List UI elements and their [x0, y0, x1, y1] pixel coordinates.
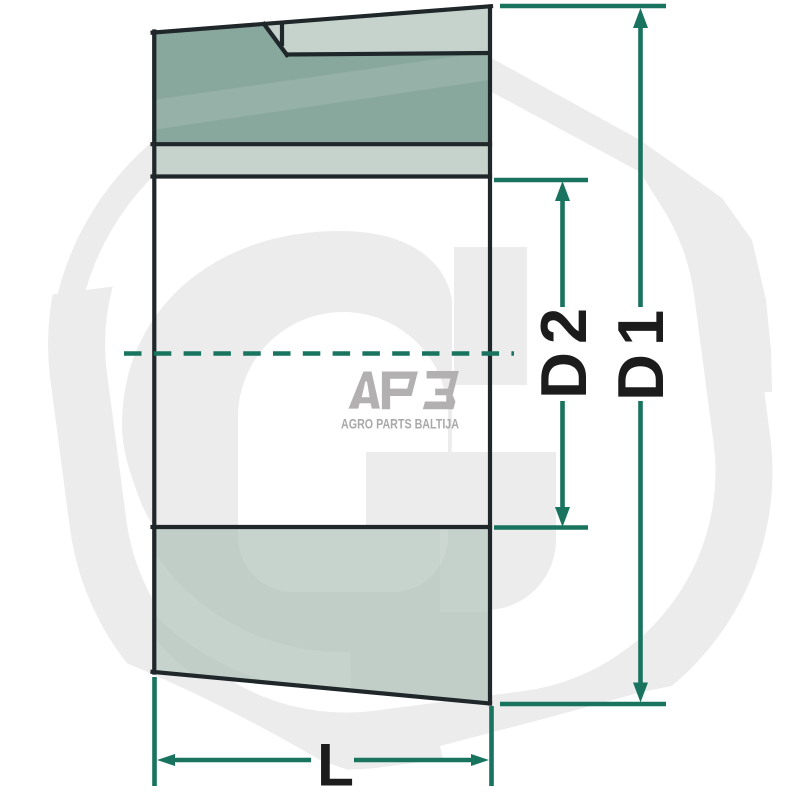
svg-text:AGRO PARTS BALTIJA: AGRO PARTS BALTIJA: [341, 416, 459, 432]
svg-text:D1: D1: [604, 302, 677, 401]
svg-text:L: L: [317, 731, 354, 799]
svg-text:D2: D2: [527, 300, 600, 399]
